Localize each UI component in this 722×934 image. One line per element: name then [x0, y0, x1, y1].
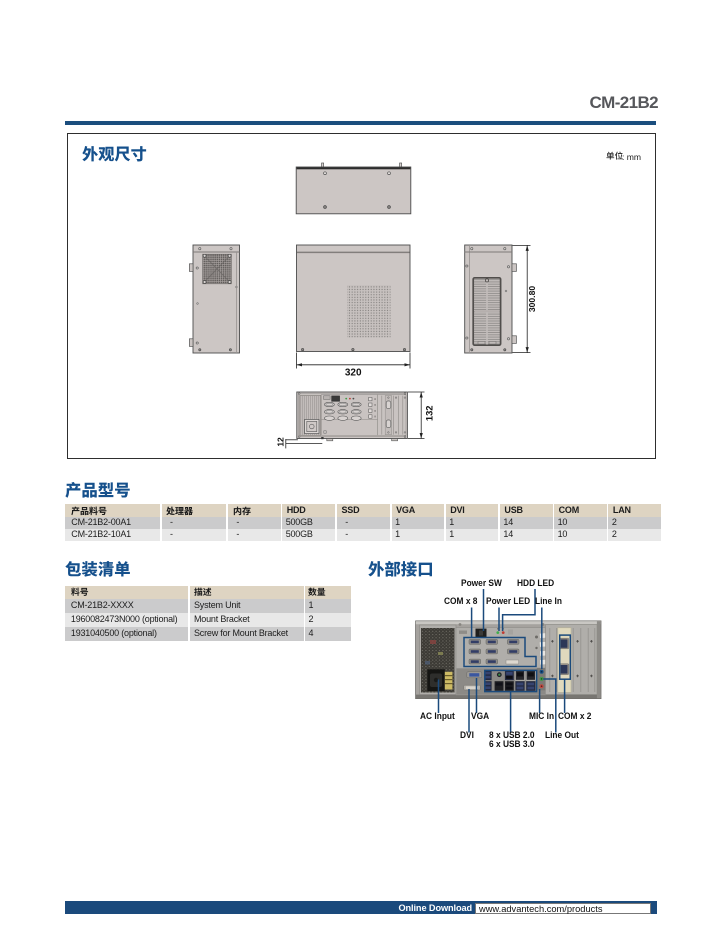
svg-text:320: 320	[345, 368, 362, 379]
svg-text:12: 12	[275, 437, 285, 447]
svg-text:132: 132	[423, 405, 434, 421]
svg-text:300.80: 300.80	[527, 286, 537, 313]
